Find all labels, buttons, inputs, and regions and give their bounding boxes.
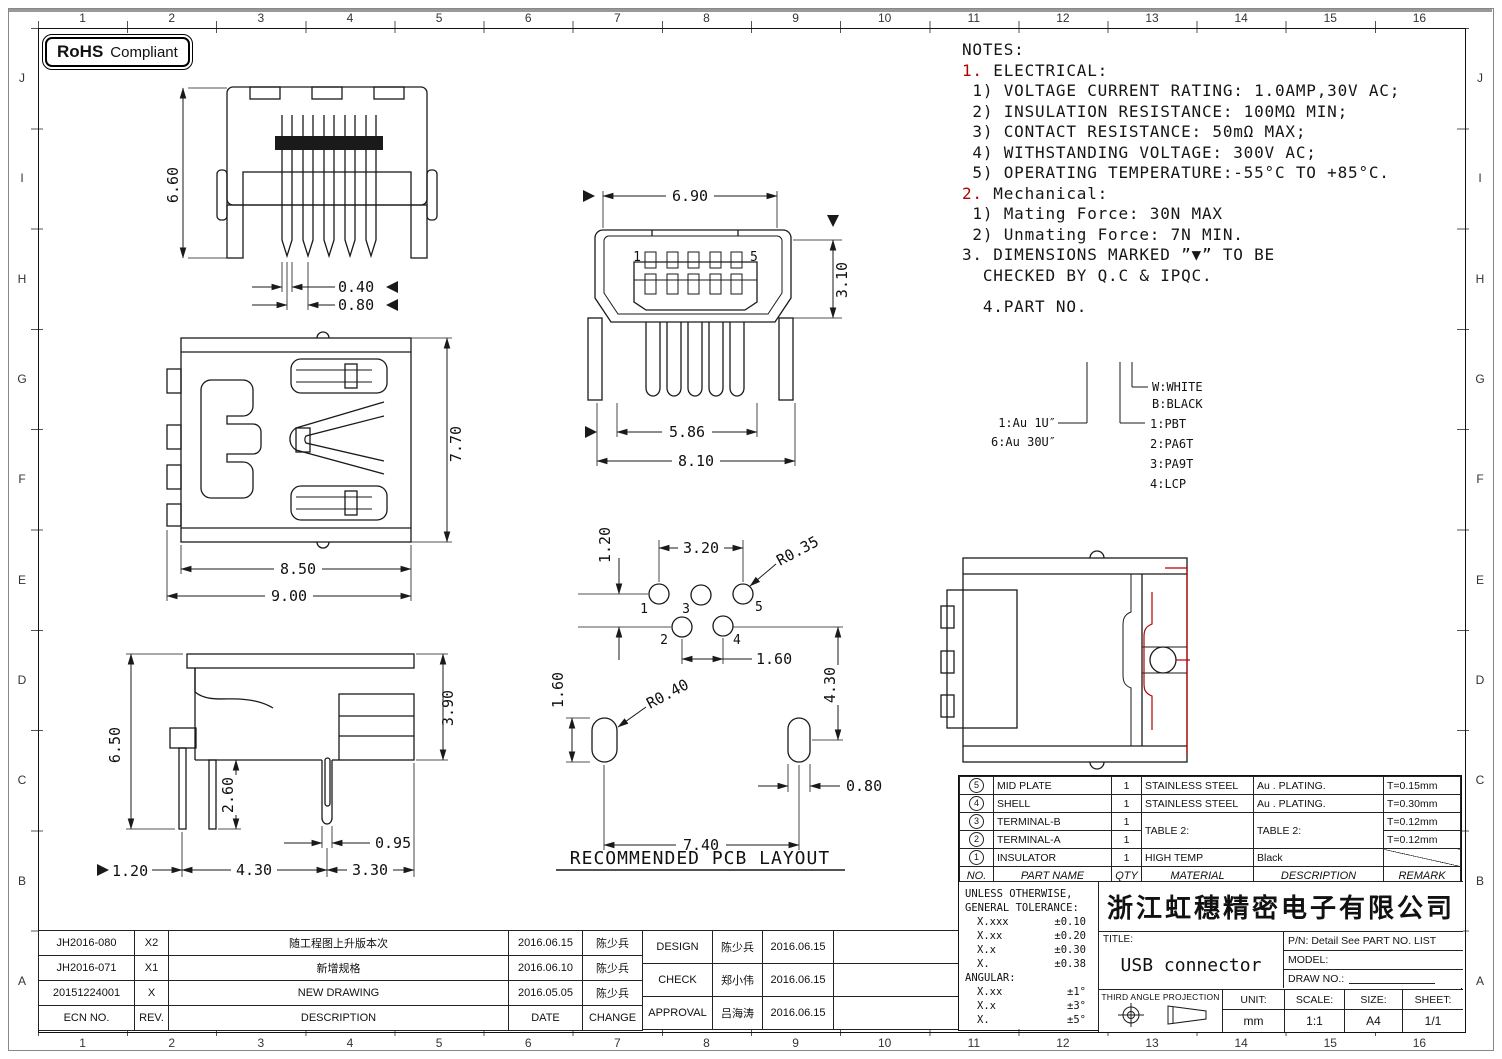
qc-mark bbox=[583, 190, 595, 202]
title-label: TITLE: bbox=[1103, 934, 1279, 945]
bottom-hidden-red-lines bbox=[1144, 568, 1190, 755]
face-outline bbox=[588, 230, 793, 400]
legend-color-w: W:WHITE bbox=[1152, 380, 1203, 394]
parts-row: 1 INSULATOR 1 HIGH TEMP Black bbox=[960, 849, 1461, 867]
qc-mark bbox=[827, 215, 839, 227]
approval-row: CHECK 郑小伟 2016.06.15 bbox=[643, 964, 959, 997]
face-pin5-label: 5 bbox=[750, 250, 758, 265]
qc-mark bbox=[386, 299, 398, 311]
revision-row: JH2016-080 X2 随工程图上升版本次 2016.06.15 陈少兵 bbox=[39, 931, 643, 956]
svg-text:0.80: 0.80 bbox=[846, 777, 882, 795]
svg-text:3.10: 3.10 bbox=[833, 262, 851, 298]
svg-text:1.60: 1.60 bbox=[549, 672, 567, 708]
pcb-pin1-label: 1 bbox=[640, 602, 648, 617]
company-name: 浙江虹穗精密电子有限公司 bbox=[1098, 881, 1463, 931]
rohs-compliant-label: Compliant bbox=[110, 44, 178, 61]
model-row: MODEL: bbox=[1283, 950, 1463, 969]
top-dim-height: 7.70 bbox=[411, 338, 465, 542]
face-dim-bottom-widths: 5.86 8.10 bbox=[585, 403, 795, 470]
pcb-dim-row-offset: 1.20 bbox=[578, 527, 671, 660]
note-line: 2) Unmating Force: 7N MIN. bbox=[962, 225, 1462, 246]
revision-row: 20151224001 X NEW DRAWING 2016.05.05 陈少兵 bbox=[39, 981, 643, 1006]
pcb-dim-slot-width: 0.80 bbox=[758, 764, 882, 795]
note-line: 1. ELECTRICAL: bbox=[962, 61, 1462, 82]
third-angle-projection-icon bbox=[1106, 1002, 1216, 1028]
grid-columns-top: 12345678910111213141516 bbox=[38, 11, 1464, 27]
scale-cell: SCALE: 1:1 bbox=[1284, 989, 1344, 1032]
note-line: 3. DIMENSIONS MARKED ”▼” TO BE bbox=[962, 245, 1462, 266]
svg-text:R0.35: R0.35 bbox=[773, 532, 821, 569]
grid-columns-bottom: 12345678910111213141516 bbox=[38, 1036, 1464, 1052]
qc-mark bbox=[585, 426, 597, 438]
drawing-sheet: 12345678910111213141516 1234567891011121… bbox=[0, 0, 1502, 1059]
svg-text:7.70: 7.70 bbox=[447, 426, 465, 462]
svg-text:4.30: 4.30 bbox=[821, 667, 839, 703]
view-side: 6.50 3.90 2.60 0.95 1.20 bbox=[85, 640, 460, 885]
bottom-outline bbox=[941, 551, 1187, 769]
note-line: 2. Mechanical: bbox=[962, 184, 1462, 205]
rohs-badge: RoHS Compliant bbox=[42, 34, 193, 70]
svg-text:6.60: 6.60 bbox=[164, 167, 182, 203]
svg-text:5.86: 5.86 bbox=[669, 423, 705, 441]
legend-material-1: 1:PBT bbox=[1150, 417, 1186, 431]
legend-plating-6: 6:Au 30U″ bbox=[991, 435, 1056, 449]
approval-table: DESIGN 陈少兵 2016.06.15 CHECK 郑小伟 2016.06.… bbox=[642, 930, 959, 1030]
grid-rows-right: JIHGFEDCBA bbox=[1471, 28, 1489, 1031]
approval-row: DESIGN 陈少兵 2016.06.15 bbox=[643, 931, 959, 964]
pcb-pin2-label: 2 bbox=[660, 633, 668, 648]
side-dim-height: 6.50 bbox=[106, 654, 183, 829]
legend-material-2: 2:PA6T bbox=[1150, 437, 1193, 451]
pcb-radius-leader-top: R0.35 bbox=[750, 532, 822, 586]
rohs-bold-label: RoHS bbox=[57, 42, 103, 62]
circled-number: 4 bbox=[969, 796, 984, 811]
svg-text:4.30: 4.30 bbox=[236, 861, 272, 879]
svg-text:R0.40: R0.40 bbox=[643, 675, 691, 712]
parts-row: 5 MID PLATE 1 STAINLESS STEEL Au . PLATI… bbox=[960, 777, 1461, 795]
note-line-part-no: 4.PART NO. bbox=[962, 297, 1462, 318]
notes-title: NOTES: bbox=[962, 40, 1462, 61]
qc-mark bbox=[386, 281, 398, 293]
tolerance-box: UNLESS OTHERWISE, GENERAL TOLERANCE: X.x… bbox=[959, 881, 1098, 1029]
note-line: 1) Mating Force: 30N MAX bbox=[962, 204, 1462, 225]
svg-text:8.50: 8.50 bbox=[280, 560, 316, 578]
circled-number: 1 bbox=[969, 850, 984, 865]
legend-material-3: 3:PA9T bbox=[1150, 457, 1193, 471]
view-face: 1 5 6.90 3.10 5.86 8. bbox=[555, 170, 855, 480]
top-outline bbox=[167, 332, 411, 548]
legend-lines bbox=[1058, 362, 1148, 423]
remark-blank-cell bbox=[1384, 849, 1461, 867]
pcb-pin5-label: 5 bbox=[755, 600, 763, 615]
side-dim-bottom: 1.20 4.30 3.30 bbox=[97, 763, 414, 880]
front-contact-band bbox=[275, 136, 383, 150]
pcb-pin4-label: 4 bbox=[733, 633, 741, 648]
pcb-dim-pitch-top: 3.20 bbox=[659, 539, 743, 582]
note-line: CHECKED BY Q.C & IPQC. bbox=[962, 266, 1462, 287]
pcb-pin3-label: 3 bbox=[682, 602, 690, 617]
face-dim-height: 3.10 bbox=[793, 215, 851, 318]
note-line: 3) CONTACT RESISTANCE: 50mΩ MAX; bbox=[962, 122, 1462, 143]
revision-table: JH2016-080 X2 随工程图上升版本次 2016.06.15 陈少兵 J… bbox=[38, 930, 643, 1031]
revision-row: JH2016-071 X1 新增规格 2016.06.10 陈少兵 bbox=[39, 956, 643, 981]
parts-row: 4 SHELL 1 STAINLESS STEEL Au . PLATING. … bbox=[960, 795, 1461, 813]
svg-text:3.30: 3.30 bbox=[352, 861, 388, 879]
parts-row: 3 TERMINAL-B 1 TABLE 2: TABLE 2: T=0.12m… bbox=[960, 813, 1461, 831]
drawno-row: DRAW NO.: bbox=[1283, 969, 1463, 988]
pcb-dim-span: 7.40 bbox=[604, 765, 799, 854]
unit-cell: UNIT: mm bbox=[1222, 989, 1284, 1032]
svg-text:8.10: 8.10 bbox=[678, 452, 714, 470]
svg-text:1.20: 1.20 bbox=[112, 862, 148, 880]
face-dim-top-width: 6.90 bbox=[583, 187, 777, 228]
pn-row: P/N: Detail See PART NO. LIST bbox=[1283, 931, 1463, 950]
side-outline bbox=[170, 654, 414, 829]
legend-color-b: B:BLACK bbox=[1152, 397, 1203, 411]
side-dim-pin: 2.60 bbox=[218, 760, 244, 829]
svg-text:0.40: 0.40 bbox=[338, 278, 374, 296]
svg-text:3.20: 3.20 bbox=[683, 539, 719, 557]
pcb-layout-title: RECOMMENDED PCB LAYOUT bbox=[570, 848, 830, 869]
approval-row: APPROVAL 吕海涛 2016.06.15 bbox=[643, 997, 959, 1030]
circled-number: 3 bbox=[969, 814, 984, 829]
notes-block: NOTES: 1. ELECTRICAL: 1) VOLTAGE CURRENT… bbox=[962, 40, 1462, 318]
grid-rows-left: JIHGFEDCBA bbox=[13, 28, 31, 1031]
pcb-dim-slot-height: 1.60 bbox=[549, 672, 590, 762]
side-dim-right-height: 3.90 bbox=[416, 654, 457, 760]
svg-text:6.50: 6.50 bbox=[106, 727, 124, 763]
svg-text:2.60: 2.60 bbox=[219, 777, 237, 813]
svg-text:3.90: 3.90 bbox=[439, 690, 457, 726]
legend-material-4: 4:LCP bbox=[1150, 477, 1186, 491]
title-block: 5 MID PLATE 1 STAINLESS STEEL Au . PLATI… bbox=[958, 775, 1462, 1031]
legend-plating-1: 1:Au 1U″ bbox=[998, 416, 1056, 430]
part-number-legend: 1:Au 1U″ 6:Au 30U″ W:WHITE B:BLACK 1:PBT… bbox=[1000, 350, 1270, 500]
revision-header-row: ECN NO. REV. DESCRIPTION DATE CHANGE bbox=[39, 1006, 643, 1031]
projection-cell: THIRD ANGLE PROJECTION bbox=[1098, 989, 1222, 1032]
parts-table: 5 MID PLATE 1 STAINLESS STEEL Au . PLATI… bbox=[959, 776, 1461, 885]
view-pcb-layout: 1 3 5 2 4 1.20 3.20 R0.35 1.60 bbox=[540, 490, 930, 875]
view-front: 6.60 0.40 0.80 bbox=[95, 75, 440, 315]
note-line: 2) INSULATION RESISTANCE: 100MΩ MIN; bbox=[962, 102, 1462, 123]
svg-text:1.60: 1.60 bbox=[756, 650, 792, 668]
size-cell: SIZE: A4 bbox=[1344, 989, 1402, 1032]
front-outline bbox=[217, 87, 437, 258]
note-line: 4) WITHSTANDING VOLTAGE: 300V AC; bbox=[962, 143, 1462, 164]
circled-number: 5 bbox=[969, 778, 984, 793]
circled-number: 2 bbox=[969, 832, 984, 847]
view-top: 7.70 8.50 9.00 bbox=[120, 325, 470, 615]
top-dim-widths: 8.50 9.00 bbox=[167, 530, 411, 605]
note-line: 1) VOLTAGE CURRENT RATING: 1.0AMP,30V AC… bbox=[962, 81, 1462, 102]
svg-text:0.80: 0.80 bbox=[338, 296, 374, 314]
svg-text:6.90: 6.90 bbox=[672, 187, 708, 205]
view-bottom bbox=[935, 545, 1205, 780]
drawno-blank-line bbox=[1349, 975, 1435, 984]
svg-text:1.20: 1.20 bbox=[596, 527, 614, 563]
side-dim-slot: 0.95 bbox=[284, 826, 411, 852]
svg-text:0.95: 0.95 bbox=[375, 834, 411, 852]
svg-text:9.00: 9.00 bbox=[271, 587, 307, 605]
pcb-holes bbox=[592, 584, 810, 762]
note-line: 5) OPERATING TEMPERATURE:-55°C TO +85°C. bbox=[962, 163, 1462, 184]
front-dim-pins: 0.40 0.80 bbox=[252, 262, 398, 314]
drawing-title: USB connector bbox=[1103, 955, 1279, 976]
pcb-radius-leader-slot: R0.40 bbox=[618, 675, 692, 727]
qc-mark bbox=[97, 864, 109, 876]
title-cell: TITLE: USB connector bbox=[1098, 931, 1283, 989]
sheet-cell: SHEET: 1/1 bbox=[1402, 989, 1463, 1032]
face-pin1-label: 1 bbox=[633, 250, 641, 265]
